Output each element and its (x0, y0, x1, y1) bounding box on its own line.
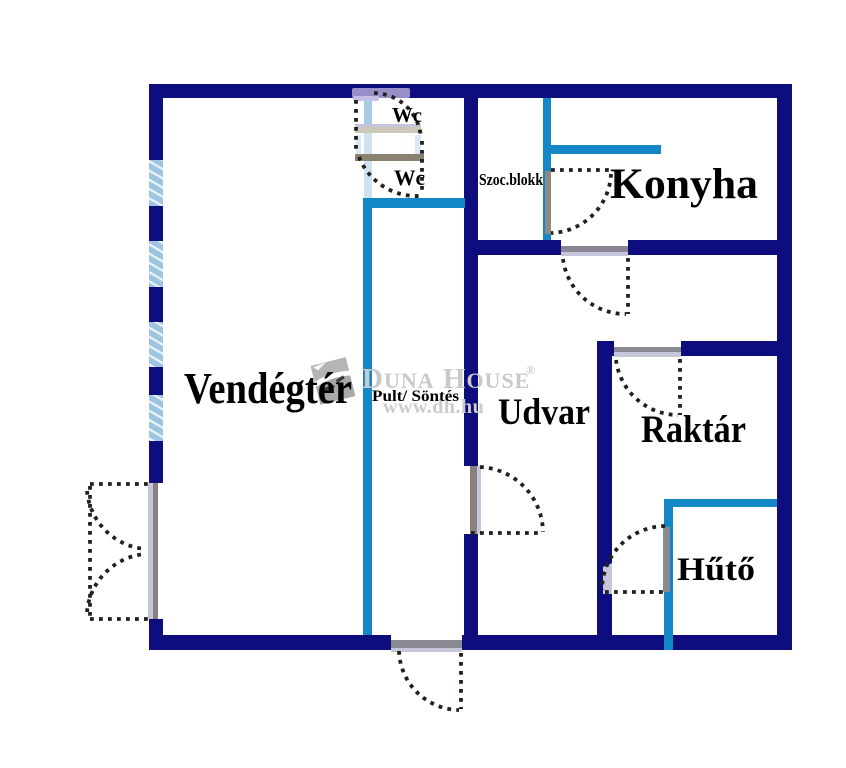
svg-text:Raktár: Raktár (641, 408, 746, 451)
svg-text:Szoc.blokk: Szoc.blokk (479, 170, 543, 189)
svg-text:®: ® (526, 363, 535, 377)
svg-text:Vendégtér: Vendégtér (184, 364, 352, 413)
svg-text:Wc: Wc (394, 165, 425, 190)
svg-text:Wc: Wc (392, 103, 422, 127)
svg-text:Hűtő: Hűtő (677, 552, 755, 588)
svg-text:Udvar: Udvar (498, 392, 590, 433)
svg-text:Pult/ Söntés: Pult/ Söntés (372, 388, 459, 405)
svg-text:Konyha: Konyha (610, 161, 758, 208)
